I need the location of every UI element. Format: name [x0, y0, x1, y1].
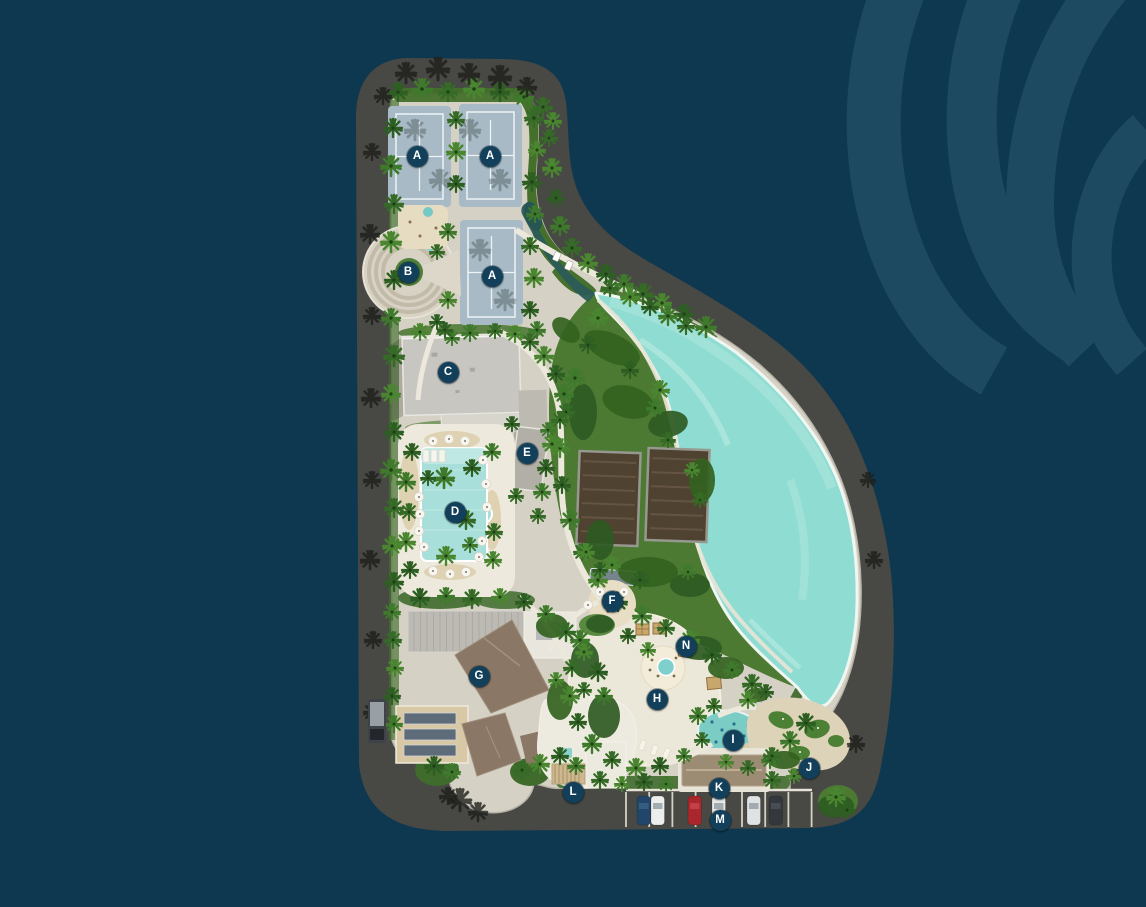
map-marker-k-12[interactable]: K: [709, 778, 730, 799]
map-marker-h-9[interactable]: H: [647, 689, 668, 710]
map-marker-e-6[interactable]: E: [517, 443, 538, 464]
map-marker-c-4[interactable]: C: [438, 362, 459, 383]
map-marker-m-14[interactable]: M: [710, 810, 731, 831]
map-marker-g-8[interactable]: G: [469, 666, 490, 687]
map-marker-a-2[interactable]: A: [482, 266, 503, 287]
map-marker-d-5[interactable]: D: [445, 502, 466, 523]
map-marker-j-11[interactable]: J: [799, 758, 820, 779]
map-marker-l-13[interactable]: L: [563, 782, 584, 803]
map-marker-n-15[interactable]: N: [676, 636, 697, 657]
map-marker-b-3[interactable]: B: [398, 262, 419, 283]
map-marker-f-7[interactable]: F: [602, 591, 623, 612]
marker-layer: AAABCDEFGHIJKLMN: [0, 0, 1146, 907]
map-marker-i-10[interactable]: I: [723, 730, 744, 751]
site-plan-page: AAABCDEFGHIJKLMN: [0, 0, 1146, 907]
map-marker-a-0[interactable]: A: [407, 146, 428, 167]
map-marker-a-1[interactable]: A: [480, 146, 501, 167]
